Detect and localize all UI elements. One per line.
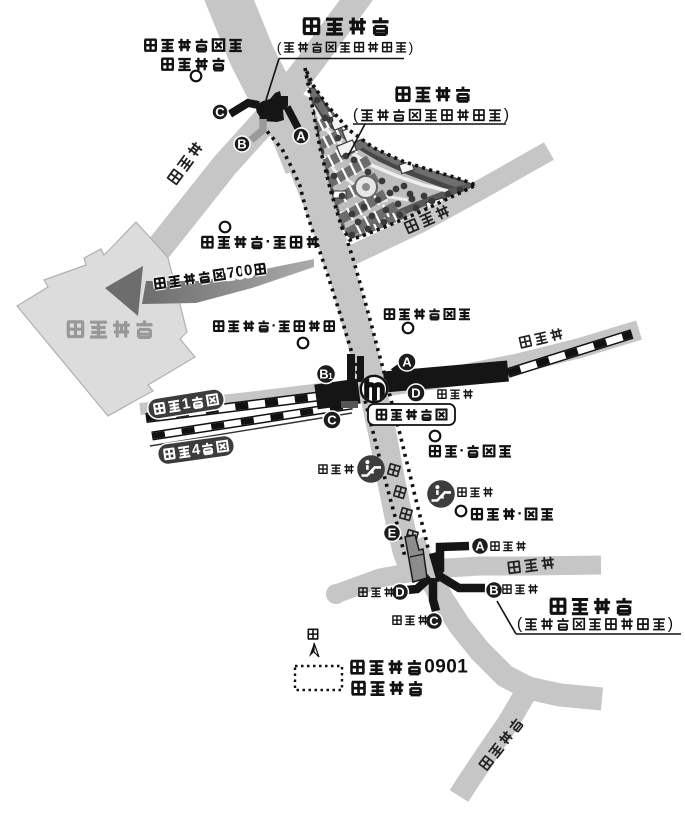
svg-text:D: D	[395, 585, 404, 600]
svg-text:E: E	[388, 526, 397, 541]
svg-text:(: (	[517, 616, 523, 633]
svg-text:B: B	[237, 137, 246, 152]
svg-text:1: 1	[328, 372, 333, 381]
svg-text:): )	[668, 616, 673, 633]
svg-text:C: C	[429, 614, 439, 629]
svg-text:D: D	[411, 386, 420, 401]
svg-text:B: B	[489, 583, 498, 598]
svg-text:A: A	[402, 355, 412, 370]
svg-text:·: ·	[265, 233, 271, 251]
svg-text:0: 0	[446, 657, 457, 678]
svg-text:A: A	[475, 539, 485, 554]
svg-text:C: C	[327, 413, 337, 428]
svg-text:·: ·	[272, 318, 277, 335]
svg-text:(: (	[353, 107, 359, 124]
svg-text:A: A	[296, 129, 306, 144]
svg-text:C: C	[215, 105, 225, 120]
svg-text:9: 9	[435, 657, 446, 678]
svg-text:): )	[504, 107, 509, 124]
svg-text:·: ·	[517, 506, 522, 523]
svg-text:0: 0	[424, 657, 435, 678]
svg-text:·: ·	[459, 443, 464, 460]
svg-text:1: 1	[457, 657, 468, 678]
svg-text:): )	[409, 39, 414, 55]
svg-text:(: (	[277, 39, 282, 55]
